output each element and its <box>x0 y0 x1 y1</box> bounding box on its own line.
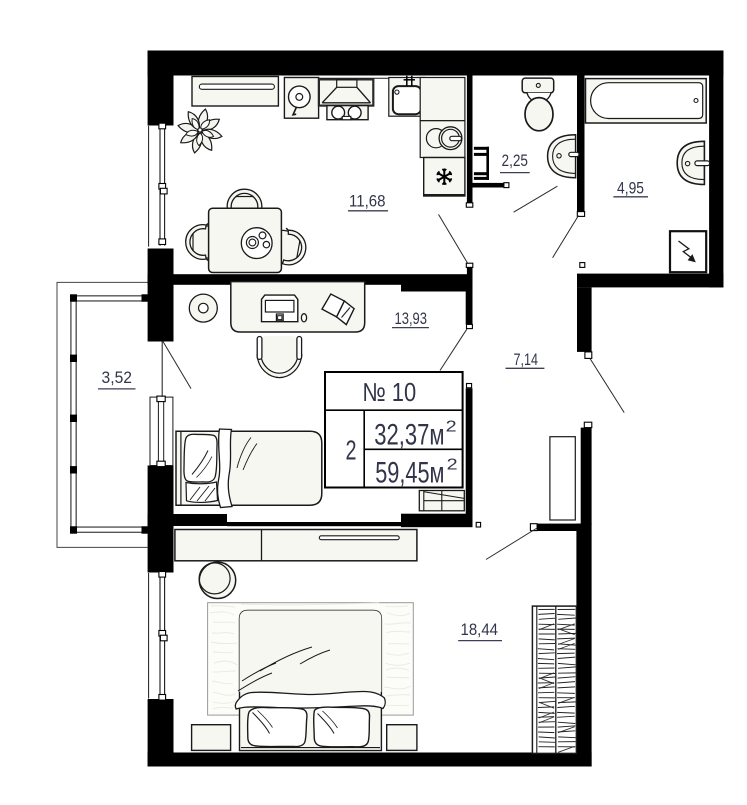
svg-text:18,44: 18,44 <box>461 621 499 639</box>
svg-text:4,95: 4,95 <box>617 180 644 198</box>
svg-text:7,14: 7,14 <box>514 351 539 369</box>
svg-text:2: 2 <box>346 434 357 465</box>
svg-text:2: 2 <box>446 418 457 435</box>
svg-text:2: 2 <box>447 456 458 473</box>
svg-text:11,68: 11,68 <box>349 192 386 210</box>
svg-text:32,37м: 32,37м <box>374 418 444 451</box>
svg-text:№ 10: № 10 <box>362 377 416 407</box>
svg-text:59,45м: 59,45м <box>375 457 444 490</box>
svg-text:3,52: 3,52 <box>102 369 133 387</box>
svg-text:13,93: 13,93 <box>395 310 428 328</box>
svg-text:2,25: 2,25 <box>502 152 529 170</box>
